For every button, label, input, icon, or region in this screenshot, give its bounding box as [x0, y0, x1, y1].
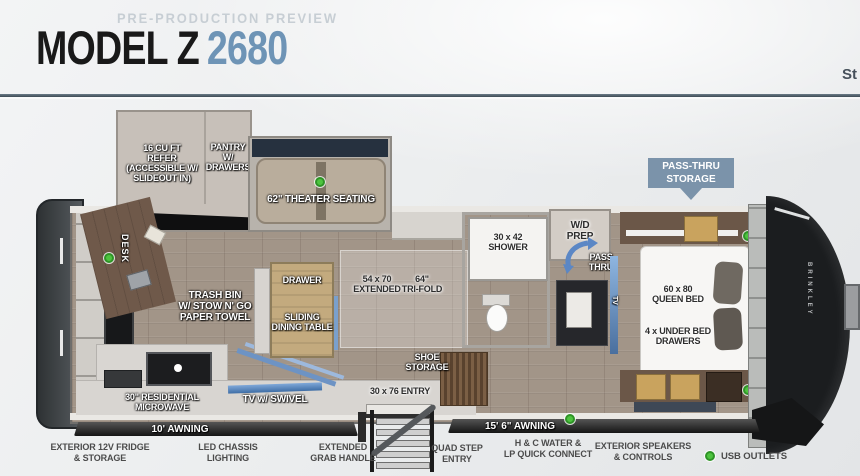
vanity-sink: [566, 292, 592, 328]
pantry-label: PANTRY W/ DRAWERS: [204, 142, 252, 172]
cooktop: [104, 370, 142, 388]
feature-label: EXTENDED GRAB HANDLE: [298, 442, 388, 465]
theater-window: [252, 139, 388, 157]
partial-text-right: St: [842, 66, 857, 83]
dining-table-label: SLIDING DINING TABLE: [256, 312, 348, 332]
theater-console: [316, 162, 326, 220]
awning-large-label: 15' 6" AWNING: [455, 421, 585, 432]
pass-thru-storage-callout: PASS-THRU STORAGE: [648, 158, 734, 188]
feature-label: EXTERIOR SPEAKERS & CONTROLS: [588, 441, 698, 464]
queen-bed-label: 60 x 80 QUEEN BED: [628, 284, 728, 304]
theater-label: 62" THEATER SEATING: [252, 194, 390, 205]
usb-outlet-dot: [104, 253, 114, 263]
refer-label: 16 CU FT REFER (ACCESSIBLE W/ SLIDEOUT I…: [118, 143, 206, 183]
dining-bench: [254, 268, 270, 354]
microwave-label: 30" RESIDENTIAL MICROWAVE: [110, 392, 214, 412]
entry-label: 30 x 76 ENTRY: [352, 386, 448, 396]
usb-legend-dot: [705, 451, 715, 461]
usb-outlet-dot: [315, 177, 325, 187]
rear-marker-light: [60, 330, 63, 356]
usb-legend-label: USB OUTLETS: [721, 451, 801, 463]
under-cabinet: [636, 374, 666, 400]
hitch-pin-box: [844, 284, 860, 330]
underbed-drawers-label: 4 x UNDER BED DRAWERS: [628, 326, 728, 346]
awning-small-label: 10' AWNING: [120, 424, 240, 435]
slide-topper: [626, 230, 738, 236]
feature-label: EXTERIOR 12V FRIDGE & STORAGE: [40, 442, 160, 465]
feature-label: H & C WATER & LP QUICK CONNECT: [493, 438, 603, 461]
mid-wall: [392, 212, 462, 240]
page-title: MODEL Z2680: [36, 24, 287, 71]
drawer-label: DRAWER: [270, 275, 334, 285]
usb-outlet-dot: [565, 414, 575, 424]
brand-label: BRINKLEY: [806, 262, 812, 317]
under-cabinet: [670, 374, 700, 400]
header-divider: [0, 94, 860, 97]
grab-handle-bracket: [358, 412, 366, 442]
bedroom-tv-wall: [610, 256, 618, 354]
microwave-dial: [174, 364, 182, 372]
sofa-trifold-label: 64" TRI-FOLD: [396, 274, 448, 294]
shower-label: 30 x 42 SHOWER: [470, 232, 546, 252]
toilet-bowl: [486, 304, 508, 332]
desk-label: DESK: [120, 234, 130, 263]
bedroom-chest: [706, 372, 742, 402]
feature-label: LED CHASSIS LIGHTING: [178, 442, 278, 465]
floorplan-page: PRE-PRODUCTION PREVIEW MODEL Z2680 St 16…: [0, 0, 860, 476]
tv-swivel-label: TV w/ SWIVEL: [225, 394, 325, 405]
feature-label: QUAD STEP ENTRY: [420, 443, 494, 466]
bedroom-tv-label: TV: [610, 296, 618, 305]
rear-marker-light: [60, 238, 63, 264]
overhead-cabinet: [684, 216, 718, 242]
model-name: MODEL Z: [36, 21, 199, 74]
model-number: 2680: [207, 21, 287, 74]
shoe-storage-label: SHOE STORAGE: [388, 352, 466, 372]
bedroom-window-sill: [634, 402, 716, 412]
sofa-extended-footprint: [340, 250, 468, 348]
